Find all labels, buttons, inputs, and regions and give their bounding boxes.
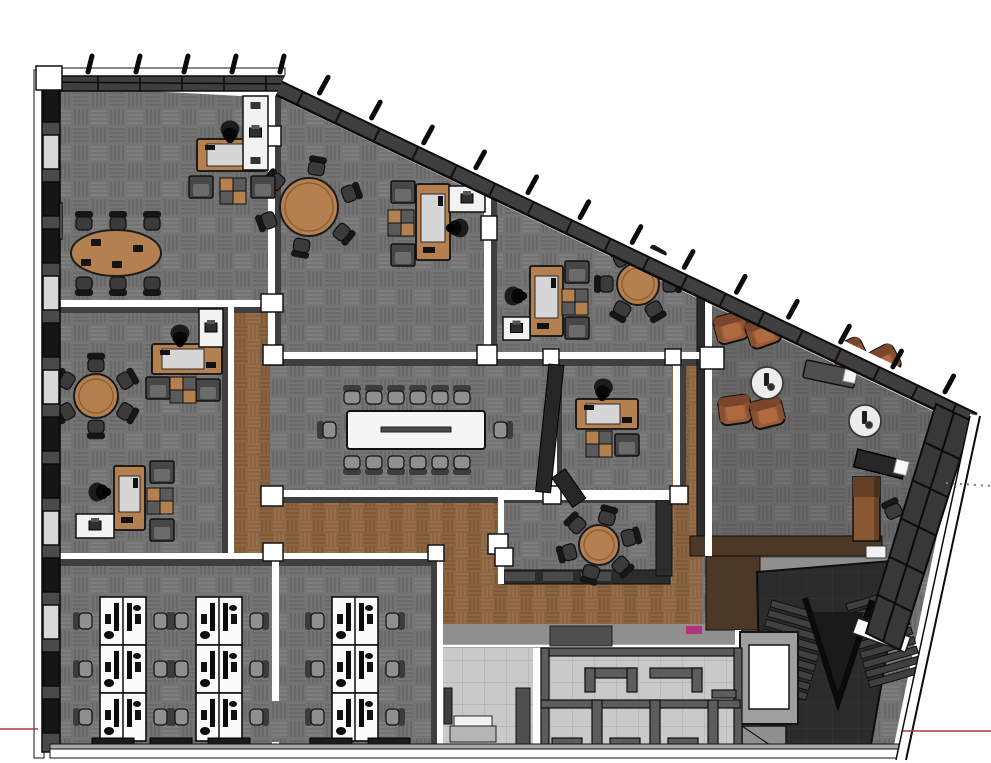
office-chair — [143, 277, 161, 296]
floorplan-3d-view[interactable] — [0, 0, 991, 763]
office-chair-gray — [494, 421, 513, 439]
armchair — [615, 434, 639, 456]
office-chair-gray — [305, 660, 324, 678]
storage-cabinet — [586, 431, 612, 457]
office-chair-gray — [453, 385, 471, 404]
sideboard-printer-station — [503, 317, 530, 340]
oval-conference-table — [71, 211, 161, 296]
office-chair-gray — [386, 612, 405, 630]
office-chair-gray — [387, 456, 405, 475]
office-chair-gray — [317, 421, 336, 439]
office-chair-gray — [250, 612, 269, 630]
office-chair-gray — [343, 385, 361, 404]
armchair — [391, 181, 415, 203]
office-chair — [143, 211, 161, 230]
office-chair — [87, 353, 105, 372]
office-chair — [594, 275, 613, 293]
lounge-side-table — [849, 405, 881, 437]
office-chair-gray — [365, 385, 383, 404]
office-chair-gray — [250, 660, 269, 678]
storage-cabinet — [147, 488, 173, 514]
office-chair — [109, 277, 127, 296]
office-chair-gray — [386, 660, 405, 678]
office-chair-gray — [305, 708, 324, 726]
armchair — [189, 176, 213, 198]
office-chair-gray — [431, 385, 449, 404]
office-chair-gray — [73, 660, 92, 678]
armchair — [146, 377, 170, 399]
armchair — [150, 461, 174, 483]
office-chair-gray — [73, 612, 92, 630]
screenshot-root — [0, 0, 991, 763]
storage-cabinet — [170, 377, 196, 403]
open-office-desk-banks — [73, 597, 405, 741]
office-chair — [87, 420, 105, 439]
office-chair-gray — [169, 660, 188, 678]
office-chair-gray — [387, 385, 405, 404]
armchair — [251, 176, 275, 198]
lounge-armchair — [717, 394, 753, 426]
armchair — [565, 317, 589, 339]
office-chair-gray — [431, 456, 449, 475]
office-chair-gray — [409, 456, 427, 475]
office-chair-gray — [305, 612, 324, 630]
sideboard-printer-station — [76, 514, 114, 538]
office-chair-gray — [169, 708, 188, 726]
tall-cabinet — [853, 477, 880, 541]
office-chair-gray — [409, 385, 427, 404]
office-chair — [109, 211, 127, 230]
magenta-marker — [686, 626, 702, 634]
office-chair-gray — [343, 456, 361, 475]
office-chair-gray — [453, 456, 471, 475]
office-chair-gray — [73, 708, 92, 726]
sideboard-printer-station — [243, 96, 268, 170]
armchair — [565, 261, 589, 283]
office-chair — [75, 211, 93, 230]
office-chair-gray — [169, 612, 188, 630]
sideboard-printer-station — [199, 309, 223, 347]
lounge-side-table — [751, 367, 783, 399]
office-chair — [75, 277, 93, 296]
armchair — [391, 244, 415, 266]
armchair — [150, 519, 174, 541]
storage-cabinet — [388, 210, 414, 236]
armchair — [196, 379, 220, 401]
office-chair-gray — [250, 708, 269, 726]
storage-cabinet — [220, 178, 246, 204]
office-chair-gray — [386, 708, 405, 726]
storage-cabinet — [562, 289, 588, 315]
office-chair-gray — [365, 456, 383, 475]
